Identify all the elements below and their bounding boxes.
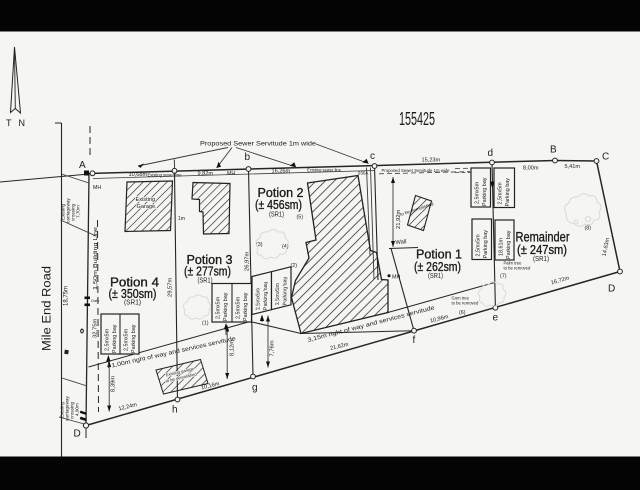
svg-text:(± 262sm): (± 262sm) xyxy=(414,259,461,274)
svg-text:Parking bay: Parking bay xyxy=(283,276,289,306)
svg-text:Existing: Existing xyxy=(136,197,156,203)
svg-text:Proposed Sewer Servitude 1m wi: Proposed Sewer Servitude 1m wide xyxy=(200,142,317,148)
svg-text:1,50m Building Line: 1,50m Building Line xyxy=(93,227,99,290)
svg-text:N: N xyxy=(19,118,26,128)
svg-text:Parking bay: Parking bay xyxy=(505,178,511,207)
svg-text:Mile End Road: Mile End Road xyxy=(42,266,54,351)
svg-text:to be removed: to be removed xyxy=(504,266,531,271)
svg-text:Parking bay: Parking bay xyxy=(112,324,118,353)
svg-text:Gate: Gate xyxy=(91,299,99,303)
svg-text:(SR1): (SR1) xyxy=(428,273,443,280)
svg-text:155425: 155425 xyxy=(399,109,435,129)
svg-text:(± 456sm): (± 456sm) xyxy=(255,197,302,212)
svg-text:2,5mx5m: 2,5mx5m xyxy=(476,234,482,257)
svg-text:2,5mx5m: 2,5mx5m xyxy=(498,182,504,205)
svg-text:to be removed: to be removed xyxy=(452,301,479,306)
svg-text:(± 247sm): (± 247sm) xyxy=(517,242,567,257)
svg-text:Parking bay: Parking bay xyxy=(263,281,269,311)
svg-text:Parking bay: Parking bay xyxy=(243,292,249,321)
svg-text:(6): (6) xyxy=(459,310,466,316)
svg-text:2,5mx5m: 2,5mx5m xyxy=(236,296,242,319)
svg-text:C: C xyxy=(602,152,609,163)
svg-text:4,90m: 4,90m xyxy=(75,403,80,416)
svg-text:Garage.: Garage. xyxy=(137,204,158,210)
svg-text:MH: MH xyxy=(392,275,400,281)
svg-text:9,82m: 9,82m xyxy=(198,171,214,177)
svg-text:(SR1): (SR1) xyxy=(198,278,213,285)
svg-text:2,5mx5m: 2,5mx5m xyxy=(475,181,481,204)
svg-text:c: c xyxy=(370,151,375,162)
svg-text:10,68m: 10,68m xyxy=(129,172,148,178)
svg-text:32,75m: 32,75m xyxy=(93,318,99,338)
svg-text:18,75m: 18,75m xyxy=(64,286,70,306)
svg-text:(SR1): (SR1) xyxy=(533,256,549,263)
svg-text:5,41m: 5,41m xyxy=(565,164,581,170)
svg-text:Existing sewer line: Existing sewer line xyxy=(307,168,342,173)
svg-text:d: d xyxy=(488,148,494,159)
svg-text:MH: MH xyxy=(227,171,235,177)
svg-text:21,92m: 21,92m xyxy=(396,209,402,229)
svg-text:2,5mx5m: 2,5mx5m xyxy=(105,328,111,351)
svg-text:(1): (1) xyxy=(202,321,209,327)
svg-text:Parking bay: Parking bay xyxy=(223,292,229,321)
svg-text:15,23m: 15,23m xyxy=(422,158,441,164)
svg-text:Parking bay: Parking bay xyxy=(482,177,488,206)
svg-text:29,57m: 29,57m xyxy=(168,277,174,297)
svg-text:e: e xyxy=(493,313,499,324)
svg-text:(5): (5) xyxy=(297,215,304,221)
svg-text:7,70m: 7,70m xyxy=(76,205,81,218)
svg-text:(7): (7) xyxy=(500,274,507,280)
svg-text:930A: 930A xyxy=(358,171,368,176)
svg-text:Parking bay: Parking bay xyxy=(131,324,137,353)
svg-text:A: A xyxy=(79,160,86,171)
svg-text:MH: MH xyxy=(93,185,101,191)
svg-text:D: D xyxy=(74,429,81,440)
svg-text:2,5mx5m: 2,5mx5m xyxy=(275,282,281,306)
svg-text:2,5mx5m: 2,5mx5m xyxy=(256,287,262,311)
svg-text:b: b xyxy=(245,152,251,163)
svg-text:18,61m: 18,61m xyxy=(499,238,505,256)
svg-text:(2): (2) xyxy=(291,263,298,269)
svg-text:(8): (8) xyxy=(585,226,592,232)
svg-text:2,5mx5m: 2,5mx5m xyxy=(124,328,130,351)
svg-text:T: T xyxy=(6,118,12,128)
svg-text:(SR1): (SR1) xyxy=(124,300,141,307)
svg-text:Existing sewer line: Existing sewer line xyxy=(148,173,183,178)
svg-text:D: D xyxy=(608,284,615,295)
svg-text:16,26m: 16,26m xyxy=(272,169,291,175)
svg-text:2,5mx5m: 2,5mx5m xyxy=(216,296,222,319)
svg-text:h: h xyxy=(172,405,178,416)
svg-text:Parking bay: Parking bay xyxy=(506,230,512,259)
svg-text:8,39m: 8,39m xyxy=(111,376,117,392)
svg-text:B: B xyxy=(550,145,557,156)
svg-text:26,97m: 26,97m xyxy=(245,251,251,271)
svg-text:Parking bay: Parking bay xyxy=(483,230,489,259)
svg-text:(± 277sm): (± 277sm) xyxy=(184,264,231,279)
svg-text:7,76m: 7,76m xyxy=(270,340,276,356)
svg-text:g: g xyxy=(252,383,258,394)
svg-text:1m: 1m xyxy=(178,216,185,222)
svg-text:8,00m: 8,00m xyxy=(523,166,539,172)
svg-text:(SR1): (SR1) xyxy=(269,212,284,219)
svg-text:Wall: Wall xyxy=(395,239,406,246)
svg-text:f: f xyxy=(413,335,416,346)
